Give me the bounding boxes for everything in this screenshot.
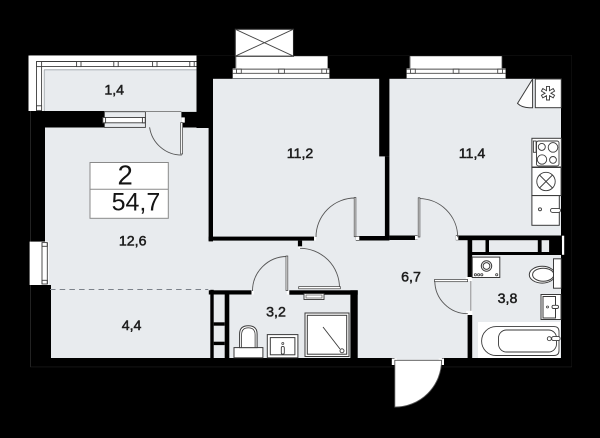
- svg-text:4,4: 4,4: [122, 318, 142, 334]
- svg-text:11,4: 11,4: [459, 146, 486, 162]
- svg-text:1,4: 1,4: [104, 83, 124, 99]
- svg-text:2: 2: [118, 160, 133, 191]
- svg-text:3,2: 3,2: [266, 305, 286, 321]
- svg-text:3,8: 3,8: [498, 291, 518, 307]
- svg-text:54,7: 54,7: [112, 189, 161, 217]
- svg-text:11,2: 11,2: [287, 146, 314, 162]
- svg-text:6,7: 6,7: [401, 269, 421, 285]
- svg-text:12,6: 12,6: [119, 234, 147, 250]
